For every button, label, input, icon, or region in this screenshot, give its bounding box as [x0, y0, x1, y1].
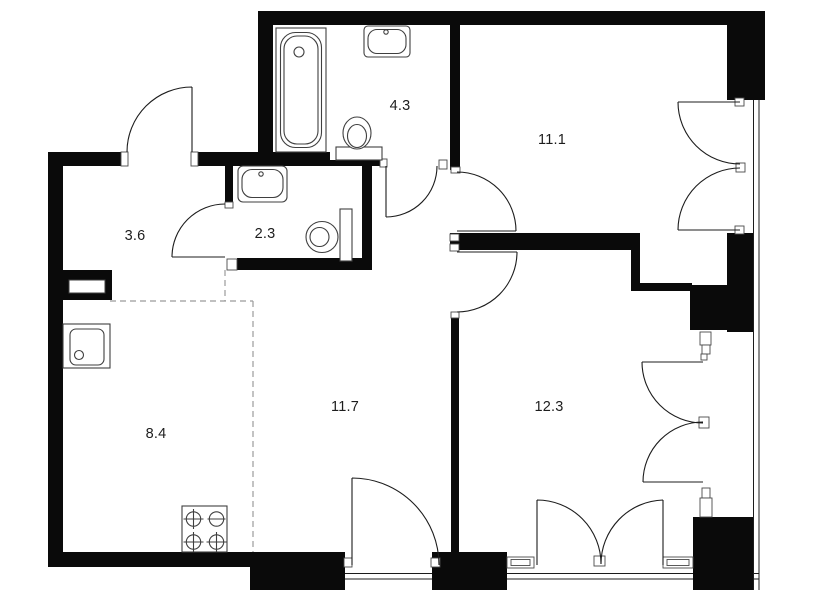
wall-entry-right: [192, 152, 330, 166]
wall-wc-right: [362, 166, 372, 270]
room-label-bedroom-2: 12.3: [534, 399, 563, 415]
bathtub: [276, 28, 326, 152]
french-door-right: [601, 500, 663, 565]
wall-bedroom-left: [450, 25, 460, 170]
room-label-bedroom: 11.1: [538, 132, 566, 148]
room-label-living: 11.7: [331, 399, 359, 415]
duct-shaft: [63, 270, 112, 300]
wall-niche-vertical: [631, 248, 640, 285]
kitchen-sink: [63, 324, 110, 368]
living-balcony-door: [352, 478, 439, 565]
wall-bottom-block-3: [693, 517, 753, 590]
wall-wc-top-thin: [330, 160, 387, 166]
bedroom-door: [457, 172, 516, 231]
floor-plan-drawing: [0, 0, 814, 600]
pipe-riser-2: [700, 488, 712, 517]
bedroom-2-door: [457, 252, 517, 312]
wall-right-pier: [727, 233, 753, 332]
bedroom-balcony-door-top: [678, 102, 740, 164]
wall-bottom-block-2: [432, 552, 507, 590]
wall-bathroom-left: [258, 11, 273, 161]
room-label-wc: 2.3: [255, 226, 276, 242]
wall-top: [258, 11, 765, 25]
wc-toilet: [306, 209, 352, 261]
room-label-kitchen: 8.4: [146, 426, 167, 442]
bedroom-2-balcony-door-top: [642, 362, 703, 423]
bathroom-door: [386, 166, 437, 217]
pipe-riser: [700, 332, 711, 360]
room-label-bathroom: 4.3: [390, 98, 411, 114]
bedroom-2-balcony-door-bottom: [643, 422, 703, 482]
wall-room-divider: [451, 315, 459, 552]
wall-bottom: [48, 552, 253, 567]
wall-wc-left: [225, 166, 233, 203]
french-door-left: [537, 500, 601, 565]
bathroom-sink: [364, 26, 410, 57]
bathroom-toilet: [336, 117, 382, 160]
wall-left-outer: [48, 152, 63, 567]
stove: [182, 506, 227, 552]
apartment-floor-plan: 4.3 11.1 3.6 2.3 8.4 11.7 12.3: [0, 0, 814, 600]
wall-bedroom-bottom: [450, 233, 640, 250]
wall-niche-horizontal: [631, 283, 692, 291]
entry-door: [127, 87, 192, 152]
wc-door: [172, 204, 225, 257]
wall-niche-block: [690, 285, 728, 330]
wc-sink: [238, 166, 287, 202]
bedroom-balcony-door-bottom: [678, 168, 740, 230]
wall-corner-block: [727, 11, 765, 100]
door-jambs: [121, 98, 745, 568]
wall-bottom-block-1: [250, 552, 345, 590]
room-label-hallway: 3.6: [125, 228, 146, 244]
glazing-lines: [345, 100, 759, 590]
